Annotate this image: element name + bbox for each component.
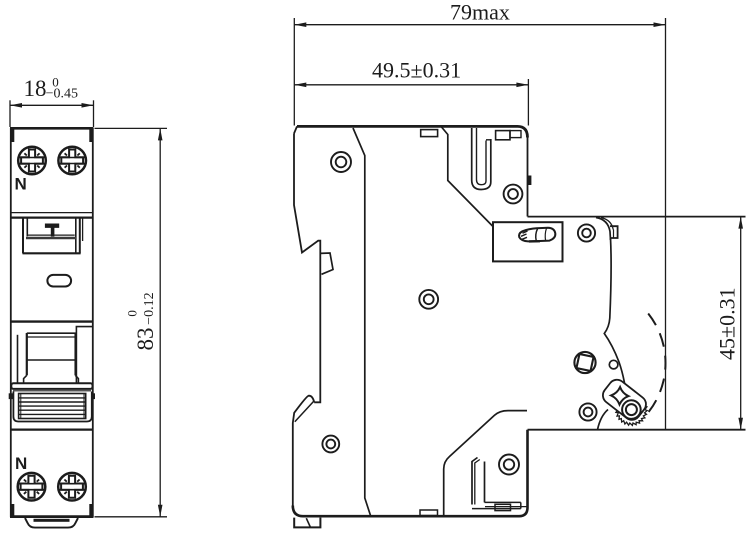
- svg-text:83: 83: [133, 328, 158, 351]
- svg-text:49.5±0.31: 49.5±0.31: [372, 58, 461, 83]
- svg-text:N: N: [15, 175, 27, 194]
- svg-text:N: N: [15, 454, 27, 473]
- svg-text:18: 18: [24, 76, 47, 101]
- svg-text:−0.12: −0.12: [142, 292, 157, 324]
- svg-text:79max: 79max: [450, 0, 510, 25]
- svg-text:−0.45: −0.45: [46, 87, 78, 102]
- svg-text:45±0.31: 45±0.31: [715, 287, 740, 360]
- svg-text:0: 0: [124, 310, 139, 317]
